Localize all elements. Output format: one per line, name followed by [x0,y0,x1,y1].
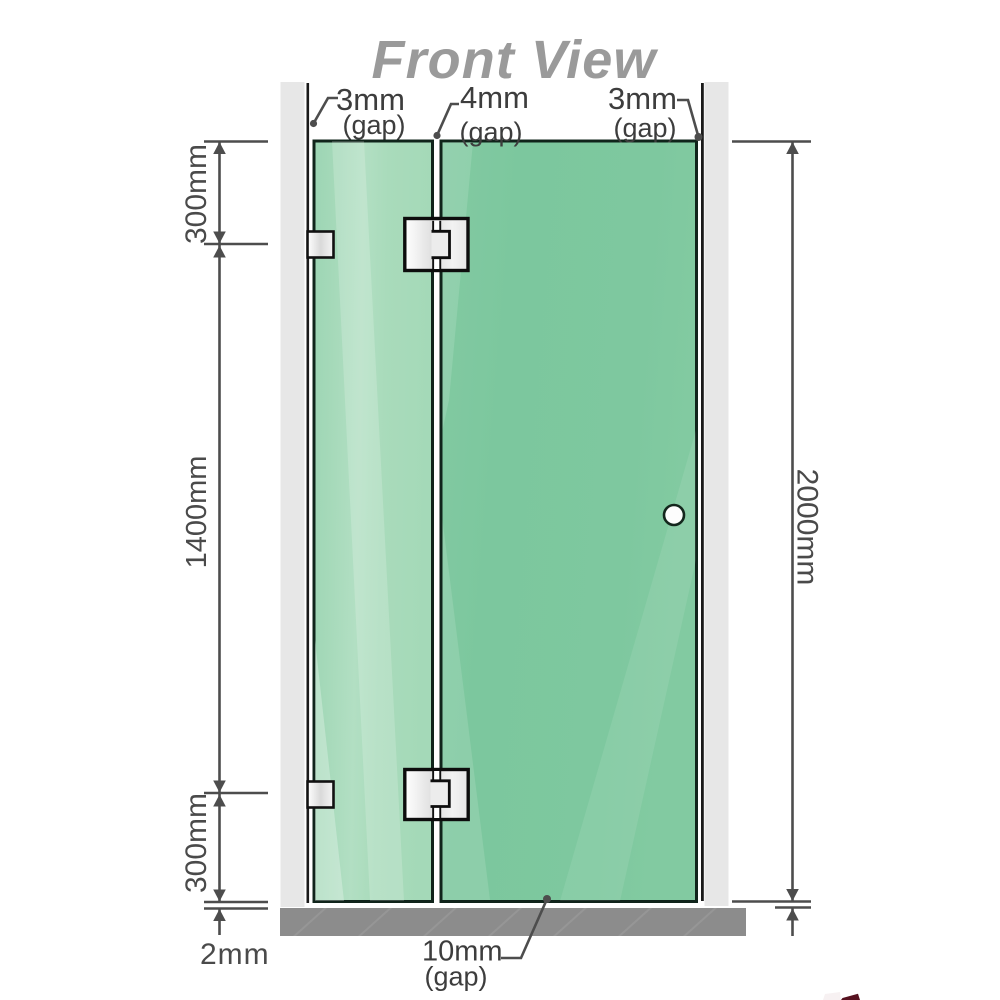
svg-text:(gap): (gap) [613,113,676,143]
svg-text:3mm: 3mm [608,81,677,116]
svg-text:(gap): (gap) [424,962,487,992]
svg-text:300mm: 300mm [180,144,213,244]
svg-text:2000mm: 2000mm [791,469,824,586]
svg-text:4mm: 4mm [460,80,529,115]
svg-text:1400mm: 1400mm [181,456,213,569]
svg-text:(gap): (gap) [342,110,405,140]
svg-text:300mm: 300mm [180,793,213,893]
svg-text:(gap): (gap) [459,117,522,147]
svg-text:2mm: 2mm [200,938,270,971]
